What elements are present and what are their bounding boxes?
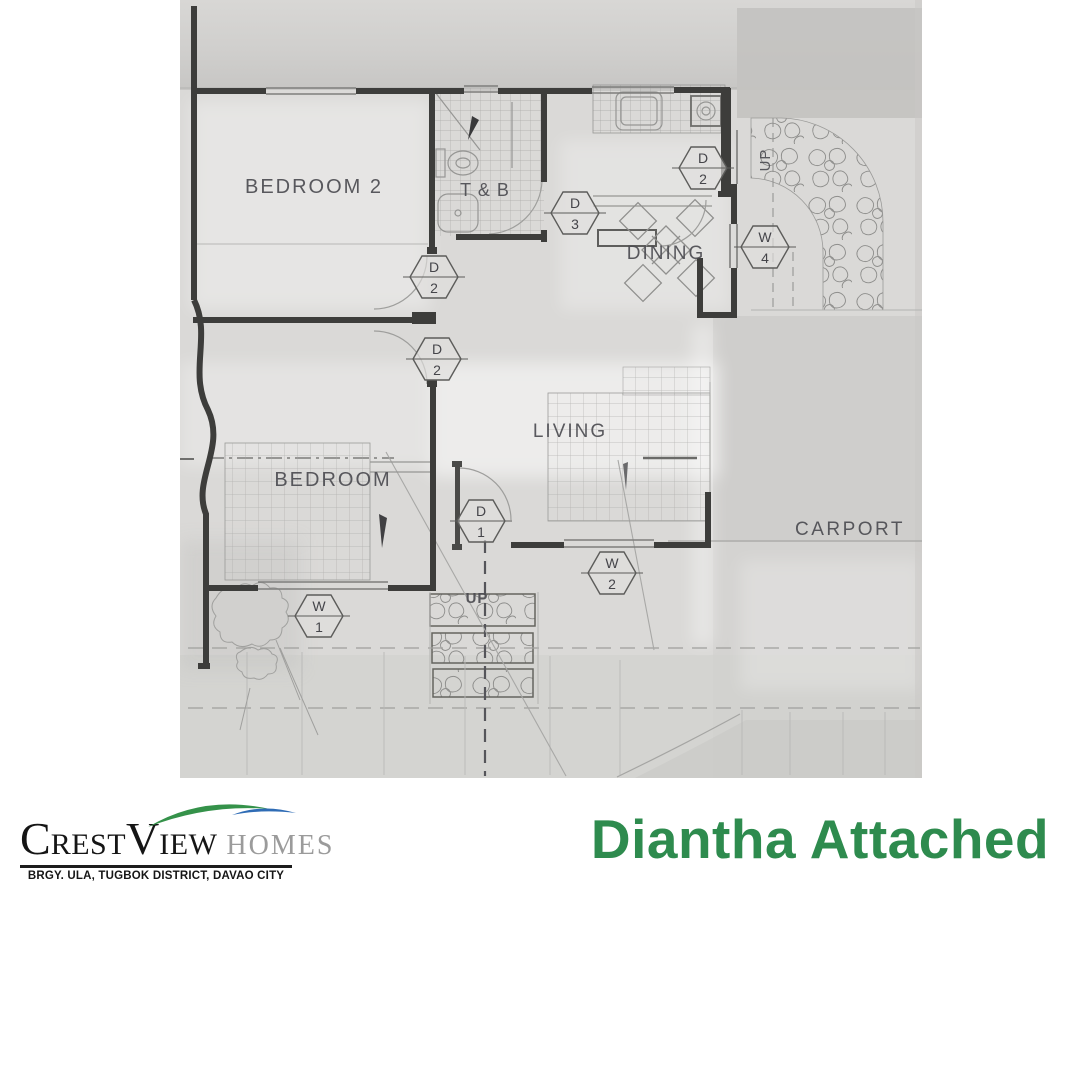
room-label: BEDROOM bbox=[274, 469, 391, 491]
stepping-stones bbox=[430, 594, 535, 697]
logo-view-iew: IEW bbox=[159, 830, 217, 860]
room-label: UP bbox=[466, 590, 489, 607]
svg-text:W: W bbox=[758, 229, 772, 245]
logo-address: BRGY. ULA, TUGBOK DISTRICT, DAVAO CITY bbox=[20, 870, 292, 882]
logo-crest-rest: REST bbox=[51, 830, 126, 860]
svg-text:2: 2 bbox=[433, 362, 441, 378]
logo-homes: HOMES bbox=[226, 832, 334, 860]
svg-text:W: W bbox=[312, 598, 326, 614]
svg-text:D: D bbox=[432, 341, 442, 357]
room-label: DINING bbox=[627, 243, 706, 264]
scan-shading bbox=[180, 0, 922, 778]
svg-text:4: 4 bbox=[761, 250, 769, 266]
room-label: CARPORT bbox=[795, 519, 905, 540]
svg-text:1: 1 bbox=[315, 619, 323, 635]
svg-text:D: D bbox=[570, 195, 580, 211]
plan-title: Diantha Attached bbox=[560, 806, 1080, 872]
svg-text:2: 2 bbox=[699, 171, 707, 187]
door-leaf bbox=[455, 466, 460, 546]
page: BEDROOM 2T & BDININGLIVINGBEDROOMCARPORT… bbox=[0, 0, 1080, 1080]
svg-text:D: D bbox=[698, 150, 708, 166]
bathroom-tiles bbox=[435, 88, 544, 236]
svg-text:D: D bbox=[476, 503, 486, 519]
bed bbox=[225, 443, 370, 580]
crestview-logo: CRESTVIEWHOMES BRGY. ULA, TUGBOK DISTRIC… bbox=[20, 794, 296, 882]
svg-text:D: D bbox=[429, 259, 439, 275]
room-label: UP bbox=[757, 149, 774, 172]
room-label: BEDROOM 2 bbox=[245, 176, 383, 198]
floor-plan-scan: BEDROOM 2T & BDININGLIVINGBEDROOMCARPORT… bbox=[180, 0, 922, 778]
svg-text:2: 2 bbox=[608, 576, 616, 592]
svg-text:W: W bbox=[605, 555, 619, 571]
floor-plan-drawing: BEDROOM 2T & BDININGLIVINGBEDROOMCARPORT… bbox=[180, 0, 922, 778]
svg-text:3: 3 bbox=[571, 216, 579, 232]
svg-text:1: 1 bbox=[477, 524, 485, 540]
room-label: T & B bbox=[460, 180, 510, 200]
logo-rule bbox=[20, 865, 292, 868]
svg-text:2: 2 bbox=[430, 280, 438, 296]
room-label: LIVING bbox=[533, 421, 607, 442]
logo-crest-c: C bbox=[20, 816, 51, 862]
logo-swoosh-icon bbox=[148, 800, 296, 830]
